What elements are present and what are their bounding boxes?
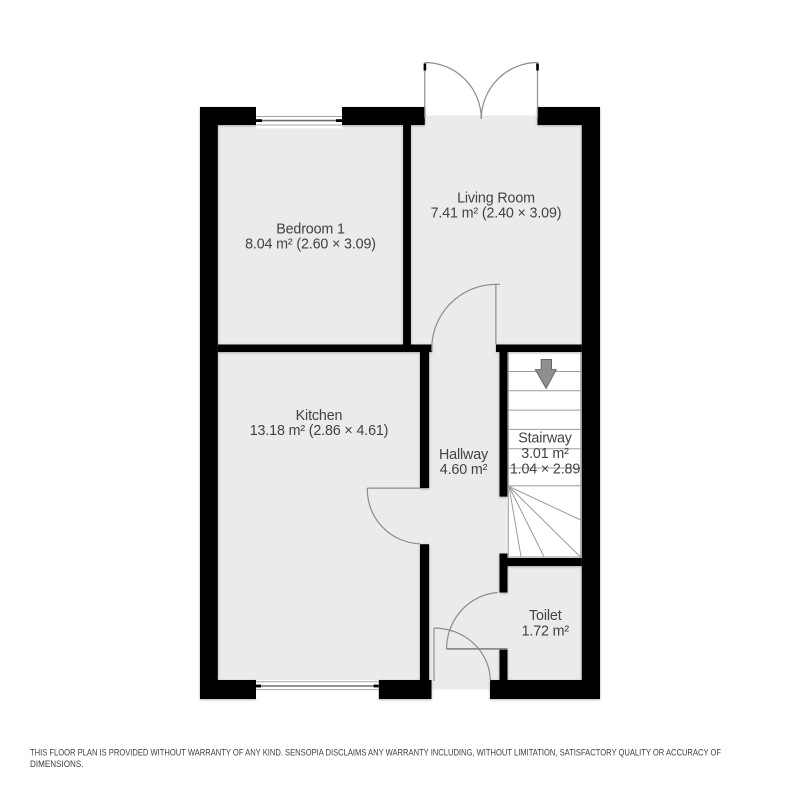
svg-text:13.18 m² (2.86 × 4.61): 13.18 m² (2.86 × 4.61) <box>250 423 389 439</box>
svg-text:Hallway: Hallway <box>439 447 489 463</box>
svg-text:THIS FLOOR PLAN IS PROVIDED WI: THIS FLOOR PLAN IS PROVIDED WITHOUT WARR… <box>30 747 721 757</box>
svg-text:7.41 m² (2.40 × 3.09): 7.41 m² (2.40 × 3.09) <box>431 206 562 222</box>
svg-text:8.04 m² (2.60 × 3.09): 8.04 m² (2.60 × 3.09) <box>245 237 376 253</box>
svg-text:Toilet: Toilet <box>529 608 562 624</box>
svg-text:Kitchen: Kitchen <box>296 408 343 424</box>
svg-text:DIMENSIONS.: DIMENSIONS. <box>30 759 84 769</box>
svg-text:Stairway: Stairway <box>518 431 573 447</box>
svg-text:3.01 m²: 3.01 m² <box>521 446 569 462</box>
svg-text:Living Room: Living Room <box>457 191 535 207</box>
svg-text:1.04 × 2.89: 1.04 × 2.89 <box>510 461 580 477</box>
svg-text:Bedroom 1: Bedroom 1 <box>276 222 345 238</box>
svg-text:1.72 m²: 1.72 m² <box>522 624 570 640</box>
svg-text:4.60 m²: 4.60 m² <box>440 462 488 478</box>
